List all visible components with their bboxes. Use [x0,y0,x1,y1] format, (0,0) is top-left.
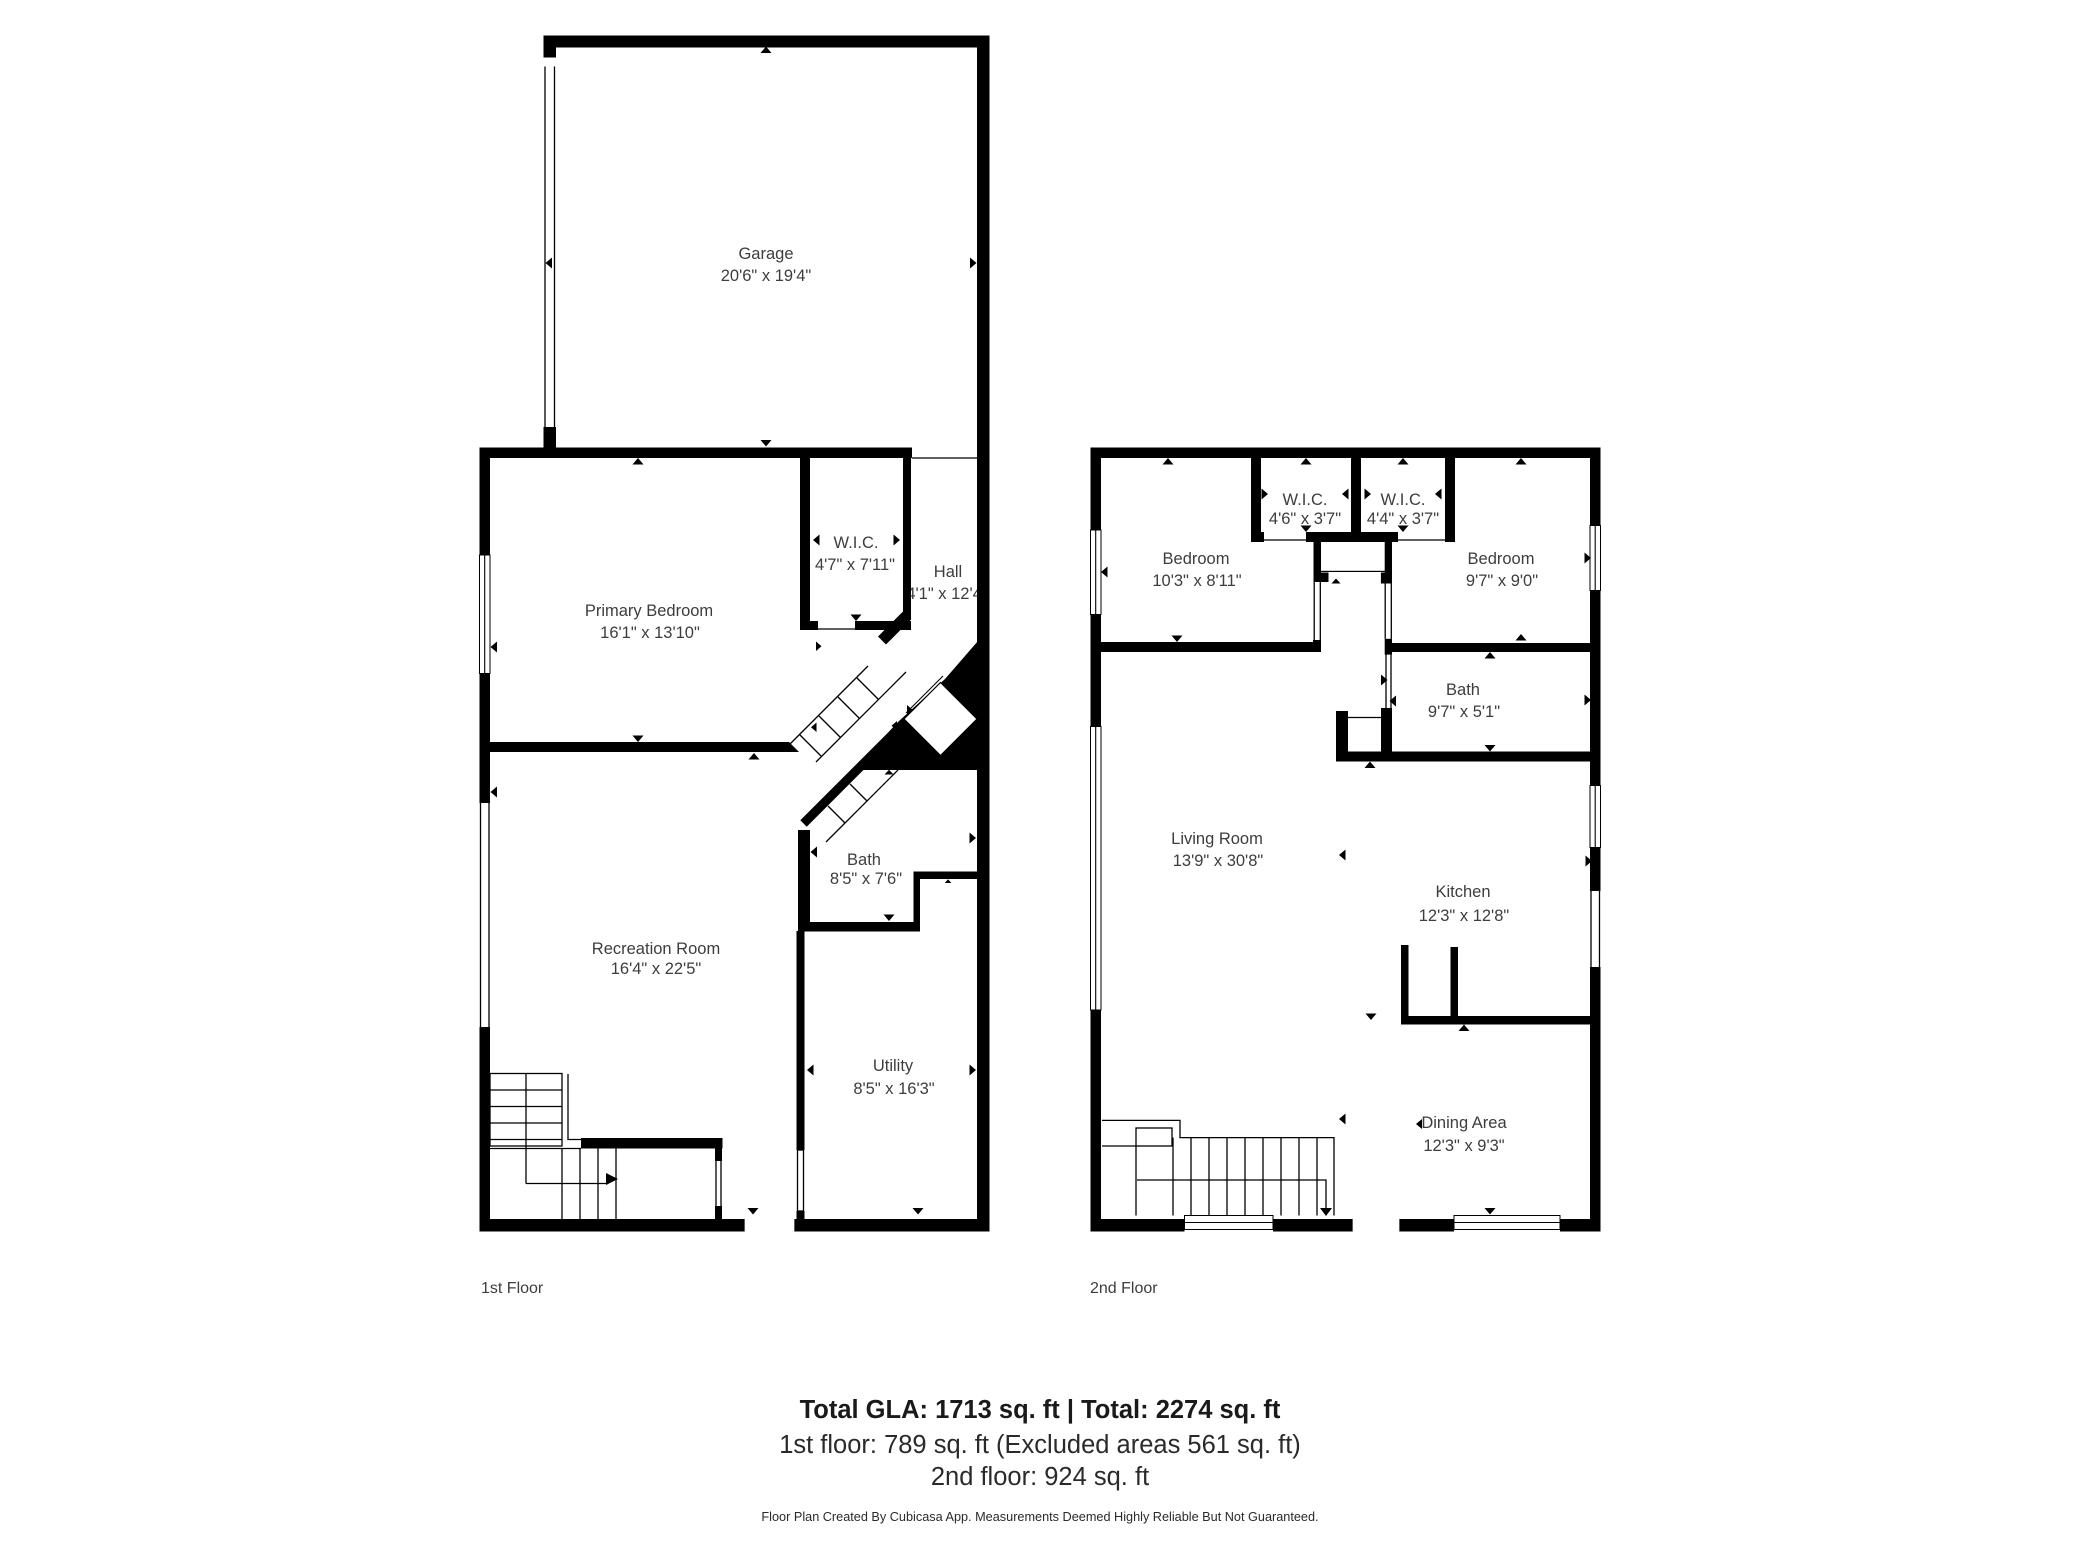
svg-text:Dining Area: Dining Area [1421,1114,1507,1132]
svg-text:8'5" x 7'6": 8'5" x 7'6" [830,870,902,888]
svg-text:2nd Floor: 2nd Floor [1090,1280,1158,1297]
svg-text:Primary Bedroom: Primary Bedroom [585,602,713,620]
svg-text:Bath: Bath [1446,681,1480,699]
svg-text:20'6" x 19'4": 20'6" x 19'4" [721,267,812,285]
svg-text:16'1" x 13'10": 16'1" x 13'10" [600,624,700,642]
svg-text:9'7" x 5'1": 9'7" x 5'1" [1428,703,1500,721]
svg-text:9'7" x 9'0": 9'7" x 9'0" [1466,572,1538,590]
svg-text:8'5" x 16'3": 8'5" x 16'3" [853,1080,934,1098]
svg-text:W.I.C.: W.I.C. [1381,491,1426,509]
svg-text:Recreation Room: Recreation Room [592,940,720,958]
svg-text:W.I.C.: W.I.C. [1283,491,1328,509]
svg-text:Kitchen: Kitchen [1435,883,1490,901]
svg-text:Floor Plan Created By Cubicasa: Floor Plan Created By Cubicasa App. Meas… [761,1510,1318,1524]
svg-text:4'6" x 3'7": 4'6" x 3'7" [1269,510,1341,528]
svg-text:Garage: Garage [738,245,793,263]
svg-text:Bedroom: Bedroom [1163,550,1230,568]
svg-text:4'4" x 3'7": 4'4" x 3'7" [1367,510,1439,528]
svg-text:12'3" x 12'8": 12'3" x 12'8" [1419,907,1510,925]
svg-text:10'3" x 8'11": 10'3" x 8'11" [1152,572,1241,590]
svg-text:12'3" x 9'3": 12'3" x 9'3" [1423,1137,1504,1155]
svg-text:Utility: Utility [873,1057,914,1075]
svg-text:Living Room: Living Room [1171,830,1263,848]
svg-text:Total GLA: 1713 sq. ft | Total: Total GLA: 1713 sq. ft | Total: 2274 sq.… [800,1396,1281,1424]
svg-text:4'7" x 7'11": 4'7" x 7'11" [815,556,895,574]
svg-text:Bath: Bath [847,851,881,869]
svg-text:13'9" x 30'8": 13'9" x 30'8" [1173,852,1264,870]
svg-text:4'1" x 12'4": 4'1" x 12'4" [906,585,987,603]
svg-text:1st Floor: 1st Floor [481,1280,544,1297]
svg-text:Bedroom: Bedroom [1468,550,1535,568]
svg-text:16'4" x 22'5": 16'4" x 22'5" [611,960,702,978]
svg-text:Hall: Hall [934,563,962,581]
svg-text:1st floor: 789 sq. ft (Exclude: 1st floor: 789 sq. ft (Excluded areas 56… [779,1431,1301,1459]
svg-text:W.I.C.: W.I.C. [834,534,879,552]
svg-text:2nd floor: 924 sq. ft: 2nd floor: 924 sq. ft [931,1463,1149,1491]
